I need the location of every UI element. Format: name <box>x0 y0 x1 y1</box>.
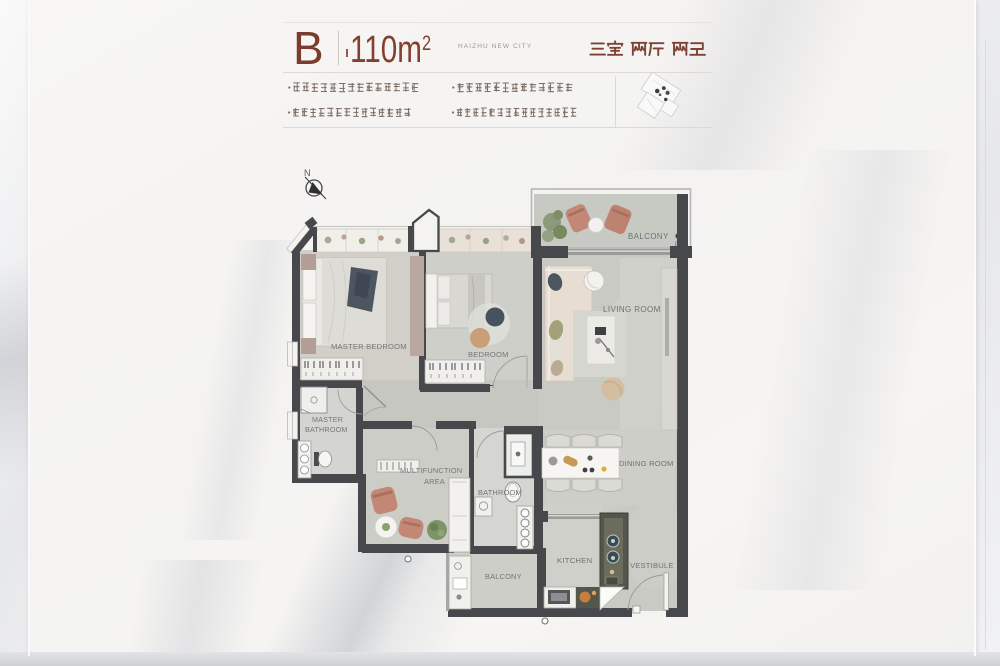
svg-text:MULTIFUNCTION: MULTIFUNCTION <box>400 466 462 475</box>
svg-text:AREA: AREA <box>424 477 445 486</box>
svg-text:N: N <box>304 168 311 178</box>
svg-text:BEDROOM: BEDROOM <box>468 350 509 359</box>
svg-text:LIVING ROOM: LIVING ROOM <box>603 305 661 314</box>
svg-text:BATHROOM: BATHROOM <box>478 488 522 497</box>
svg-text:DINING ROOM: DINING ROOM <box>619 459 674 468</box>
svg-text:BALCONY: BALCONY <box>485 572 522 581</box>
svg-text:BATHROOM: BATHROOM <box>305 425 348 434</box>
svg-text:MASTER: MASTER <box>312 415 343 424</box>
svg-text:BALCONY: BALCONY <box>628 232 669 241</box>
svg-text:MASTER BEDROOM: MASTER BEDROOM <box>331 342 407 351</box>
svg-text:VESTIBULE: VESTIBULE <box>630 561 674 570</box>
svg-text:KITCHEN: KITCHEN <box>557 556 592 565</box>
